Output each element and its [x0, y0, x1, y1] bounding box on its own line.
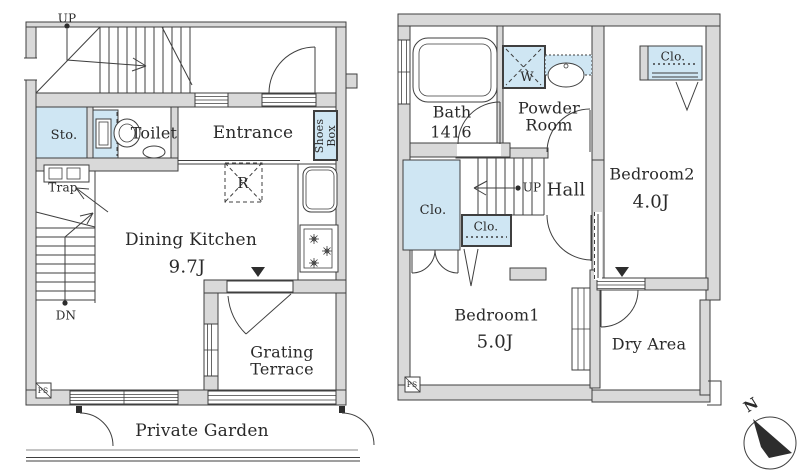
private-garden-label: Private Garden — [135, 422, 269, 440]
hall-label: Hall — [547, 180, 586, 199]
powder-counter-sink — [545, 55, 592, 87]
powder-room-label: Powder Room — [507, 100, 591, 135]
terrace-door — [227, 280, 293, 334]
bathtub — [413, 38, 497, 102]
dining-kitchen-label: Dining Kitchen — [125, 231, 257, 249]
direction-triangle-floor1 — [251, 267, 265, 277]
compass-needle — [753, 419, 792, 458]
dry-area-door — [601, 290, 638, 327]
floorplan-drawing — [0, 0, 800, 475]
washer-label: W — [520, 71, 534, 85]
bedroom2-size-label: 4.0J — [633, 192, 670, 211]
up-label-floor1: UP — [58, 13, 77, 26]
compass — [744, 417, 796, 469]
entrance-label: Entrance — [213, 124, 294, 142]
closet-large-label: Clo. — [420, 204, 447, 218]
bedroom1-size-label: 5.0J — [477, 332, 514, 351]
bedroom2-label: Bedroom2 — [609, 165, 694, 182]
trap-label: Trap — [48, 182, 77, 195]
down-label: DN — [56, 310, 77, 323]
stairs-up-first-floor — [36, 27, 192, 93]
closet-bedroom2-label: Clo. — [661, 51, 686, 64]
hall-bedroom1-door — [547, 215, 591, 261]
dry-area-label: Dry Area — [612, 335, 686, 352]
kitchen-sink — [303, 167, 337, 212]
bedroom2-sliding-door — [594, 212, 602, 280]
bath-size-label: 1416 — [430, 123, 472, 140]
pipe-space-label-floor1: PS — [38, 387, 49, 395]
toilet-label: Toilet — [131, 124, 177, 141]
storage-label: Sto. — [51, 129, 78, 143]
entrance-door — [269, 47, 315, 93]
up-label-floor2: UP — [523, 182, 542, 195]
grating-terrace-label: Grating Terrace — [240, 344, 324, 379]
bath-label: Bath — [433, 103, 472, 120]
refrigerator-label: R — [237, 175, 249, 191]
shoes-box-label: Shoes Box — [314, 113, 338, 159]
up-arrow — [64, 23, 146, 71]
pipe-space-label-floor2: PS — [407, 381, 418, 389]
stove — [300, 225, 338, 272]
dining-kitchen-size: 9.7J — [169, 257, 206, 276]
closet-small-label: Clo. — [474, 221, 499, 234]
direction-triangle-floor2 — [615, 267, 629, 277]
floorplan-page: UP Sto. Toilet Entrance Shoes Box Trap R… — [0, 0, 800, 475]
bedroom1-label: Bedroom1 — [454, 306, 539, 323]
